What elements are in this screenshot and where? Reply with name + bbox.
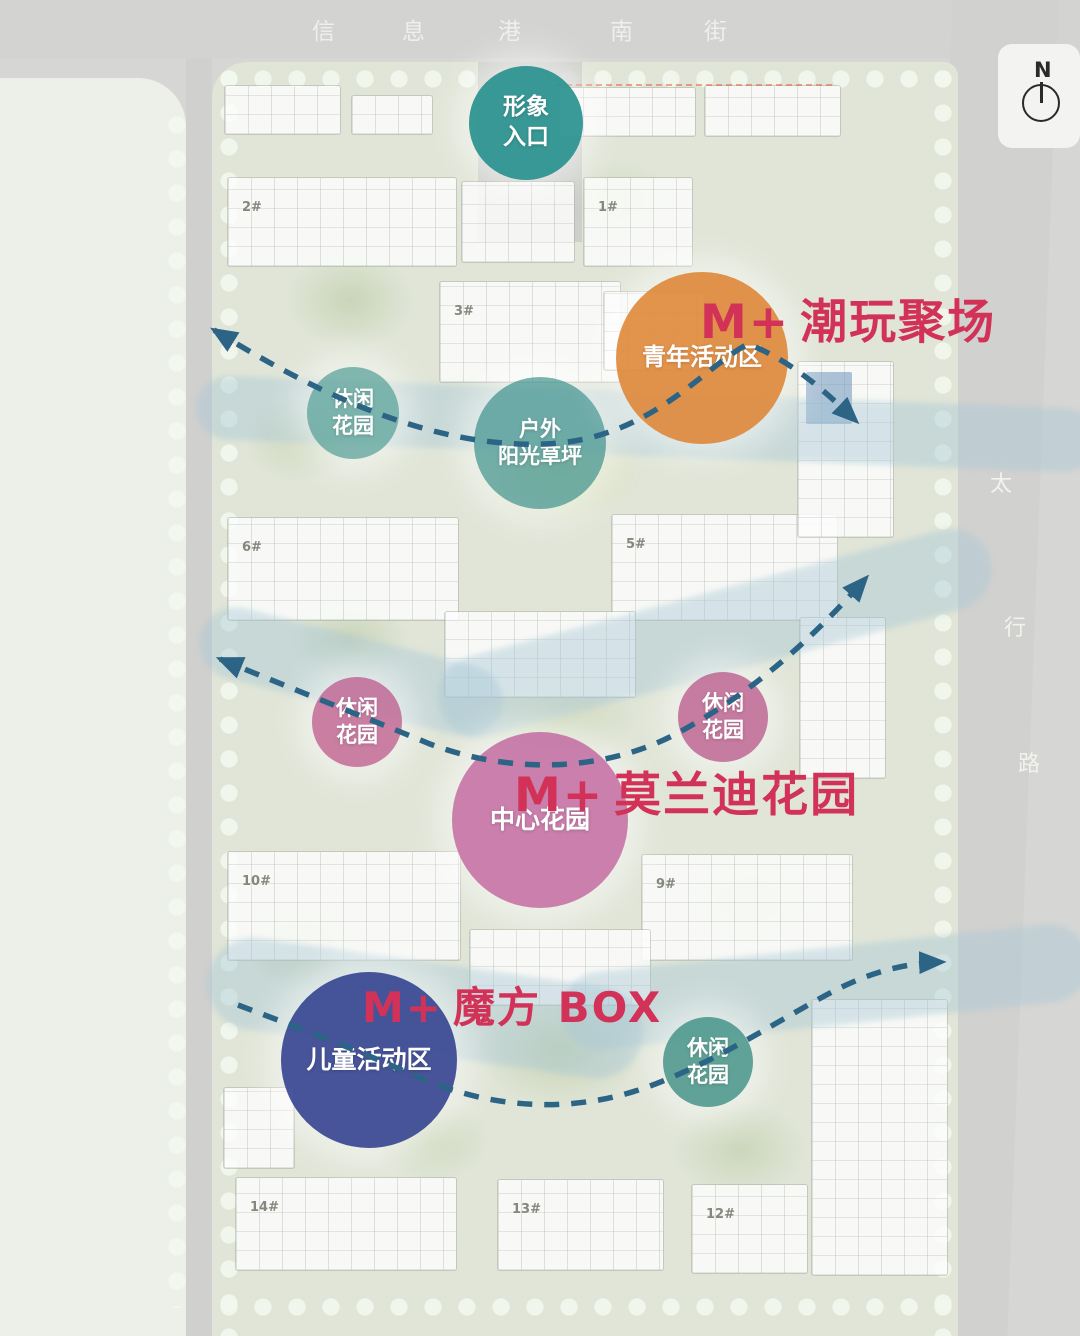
compass-needle-icon bbox=[1040, 82, 1043, 103]
building-cluster: 12# bbox=[692, 1185, 807, 1273]
street-top-band: 信 息 港 南 街 bbox=[0, 0, 1080, 58]
headline-name: 魔方 BOX bbox=[453, 983, 662, 1032]
building-number: 12# bbox=[706, 1207, 735, 1222]
street-top-label: 信 bbox=[312, 12, 335, 46]
building-cluster: 1# bbox=[584, 178, 692, 266]
street-right-label: 太 bbox=[990, 466, 1012, 498]
zone-label: 花园 bbox=[702, 717, 744, 744]
street-top-label: 南 bbox=[610, 12, 633, 46]
street-right-label: 行 bbox=[1004, 610, 1026, 642]
building-number: 3# bbox=[454, 304, 474, 319]
building-cluster: 6# bbox=[228, 518, 458, 620]
street-top-label: 港 bbox=[498, 12, 521, 46]
headline-name: 潮玩聚场 bbox=[800, 295, 996, 350]
red-boundary-line bbox=[556, 84, 832, 86]
zone-label: 休闲 bbox=[336, 695, 378, 722]
zone-label: 儿童活动区 bbox=[306, 1044, 431, 1077]
masterplan-canvas: 信 息 港 南 街 太 行 路 2# 1# 3# 6# 5# 10# bbox=[0, 0, 1080, 1336]
building-number: 13# bbox=[512, 1202, 541, 1217]
street-top-label: 街 bbox=[704, 12, 727, 46]
zone-label: 形象 bbox=[503, 93, 549, 123]
building-cluster bbox=[812, 1000, 947, 1275]
building-cluster bbox=[224, 1088, 294, 1168]
headline-prefix: M+ bbox=[514, 768, 604, 823]
headline-prefix: M+ bbox=[700, 295, 790, 350]
tree-border bbox=[212, 1290, 958, 1332]
headline-trend-playground: M+潮玩聚场 bbox=[700, 283, 996, 352]
headline-morandi-garden: M+莫兰迪花园 bbox=[514, 756, 859, 825]
zone-label: 休闲 bbox=[687, 1035, 729, 1062]
zone-label: 户外 bbox=[519, 416, 561, 443]
adjacent-parcel bbox=[0, 78, 186, 1336]
building-cluster bbox=[225, 86, 340, 134]
building-cluster: 3# bbox=[440, 282, 620, 382]
building-number: 6# bbox=[242, 540, 262, 555]
zone-label: 花园 bbox=[336, 722, 378, 749]
headline-name: 莫兰迪花园 bbox=[614, 768, 859, 823]
building-number: 2# bbox=[242, 200, 262, 215]
zone-label: 休闲 bbox=[702, 690, 744, 717]
north-label: N bbox=[1034, 58, 1052, 82]
building-number: 5# bbox=[626, 537, 646, 552]
building-cluster: 13# bbox=[498, 1180, 663, 1270]
zone-leisure-garden-nw: 休闲 花园 bbox=[307, 367, 399, 459]
building-cluster: 14# bbox=[236, 1178, 456, 1270]
zone-label: 休闲 bbox=[332, 386, 374, 413]
street-top-label: 息 bbox=[402, 12, 425, 46]
building-number: 9# bbox=[656, 877, 676, 892]
zone-outdoor-lawn: 户外 阳光草坪 bbox=[474, 377, 606, 509]
building-cluster: 9# bbox=[642, 855, 852, 960]
zone-label: 花园 bbox=[687, 1062, 729, 1089]
building-cluster bbox=[352, 96, 432, 134]
building-cluster: 2# bbox=[228, 178, 456, 266]
zone-label: 阳光草坪 bbox=[498, 443, 582, 470]
building-number: 1# bbox=[598, 200, 618, 215]
building-cluster bbox=[462, 182, 574, 262]
building-number: 10# bbox=[242, 874, 271, 889]
zone-label: 花园 bbox=[332, 413, 374, 440]
building-cluster bbox=[705, 86, 840, 136]
north-compass: N bbox=[998, 44, 1080, 148]
zone-label: 入口 bbox=[503, 123, 549, 153]
zone-leisure-garden-se: 休闲 花园 bbox=[663, 1017, 753, 1107]
zone-leisure-garden-w: 休闲 花园 bbox=[312, 677, 402, 767]
headline-prefix: M+ bbox=[362, 983, 443, 1032]
zone-entrance: 形象 入口 bbox=[469, 66, 583, 180]
zone-leisure-garden-e: 休闲 花园 bbox=[678, 672, 768, 762]
side-road bbox=[186, 58, 212, 1336]
building-number: 14# bbox=[250, 1200, 279, 1215]
street-right-label: 路 bbox=[1018, 746, 1040, 778]
headline-cube-box: M+魔方 BOX bbox=[362, 974, 662, 1035]
